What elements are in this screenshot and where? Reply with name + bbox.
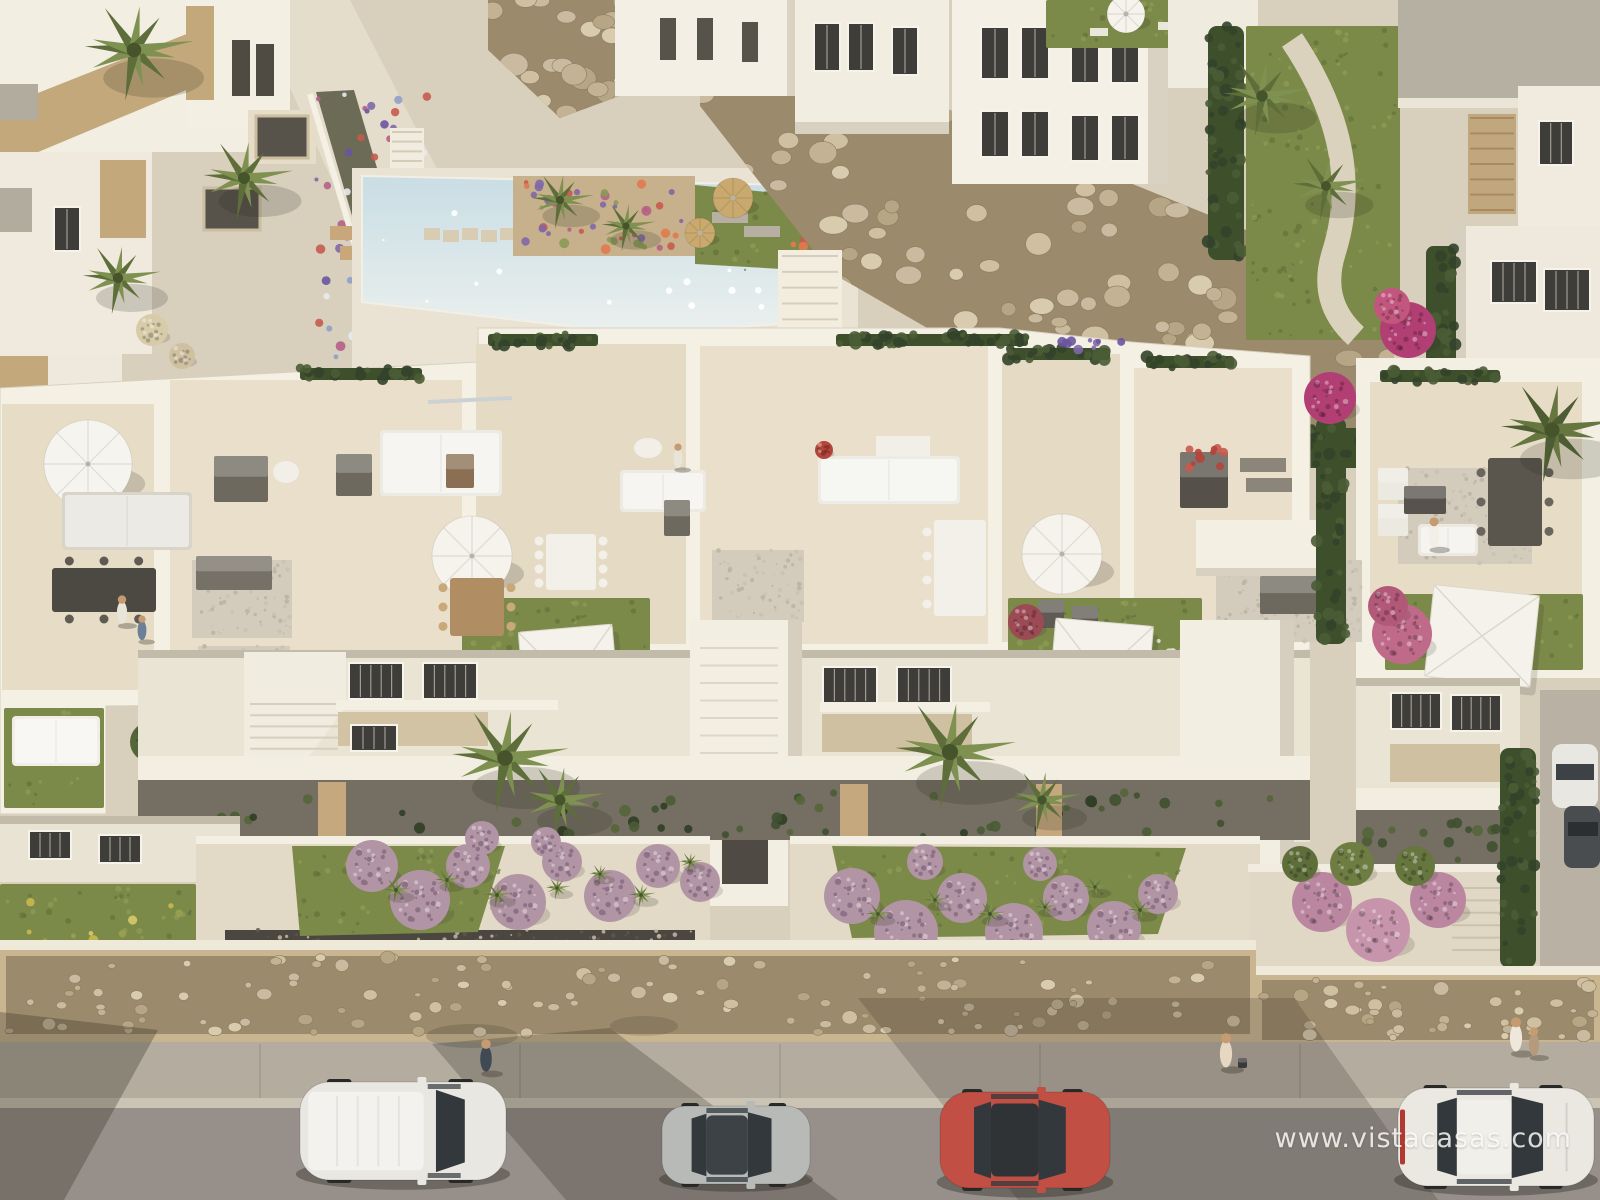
circle-shape: [849, 337, 861, 349]
circle-shape: [1313, 612, 1322, 621]
circle-shape: [1369, 919, 1371, 921]
circle-shape: [1520, 884, 1529, 893]
circle-shape: [960, 829, 968, 837]
circle-shape: [528, 903, 533, 908]
circle-shape: [1165, 31, 1168, 34]
circle-shape: [906, 917, 910, 921]
circle-shape: [1525, 783, 1530, 788]
circle-shape: [364, 857, 366, 859]
car-glass: [1568, 822, 1598, 836]
circle-shape: [371, 853, 375, 857]
circle-shape: [550, 835, 554, 839]
rect-shape: [417, 1077, 426, 1083]
circle-shape: [114, 896, 118, 900]
rect-shape: [1238, 1058, 1247, 1063]
circle-shape: [689, 884, 692, 887]
circle-shape: [1452, 818, 1462, 828]
circle-shape: [343, 188, 350, 195]
ellipse-shape: [674, 448, 683, 468]
circle-shape: [1492, 552, 1496, 556]
circle-shape: [1160, 898, 1165, 903]
circle-shape: [480, 832, 484, 836]
circle-shape: [747, 596, 751, 600]
polygon-shape: [692, 1114, 707, 1176]
rect-shape: [481, 230, 497, 242]
circle-shape: [545, 607, 551, 613]
rect-shape: [790, 836, 1260, 844]
circle-shape: [283, 605, 287, 609]
ellipse-shape: [683, 864, 705, 872]
circle-shape: [663, 934, 666, 937]
circle-shape: [972, 882, 976, 886]
circle-shape: [684, 825, 692, 833]
circle-shape: [1563, 599, 1568, 604]
ellipse-shape: [753, 960, 766, 969]
circle-shape: [654, 871, 659, 876]
circle-shape: [1332, 588, 1341, 597]
circle-shape: [1393, 341, 1396, 344]
circle-shape: [26, 898, 34, 906]
rect-shape: [795, 122, 949, 134]
circle-shape: [1008, 922, 1013, 927]
circle-shape: [1043, 905, 1046, 908]
circle-shape: [126, 887, 130, 891]
circle-shape: [515, 612, 518, 615]
ground-recess: [138, 780, 1310, 840]
ellipse-shape: [1104, 286, 1131, 307]
circle-shape: [574, 189, 580, 195]
circle-shape: [1448, 502, 1451, 505]
circle-shape: [1327, 424, 1336, 433]
circle-shape: [1412, 377, 1422, 387]
circle-shape: [972, 887, 974, 889]
circle-shape: [1418, 907, 1422, 911]
circle-shape: [598, 872, 601, 875]
circle-shape: [1396, 624, 1401, 629]
circle-shape: [1090, 7, 1094, 11]
circle-shape: [367, 872, 372, 877]
circle-shape: [974, 899, 979, 904]
circle-shape: [1029, 933, 1034, 938]
circle-shape: [1093, 885, 1096, 888]
rect-shape: [1356, 788, 1520, 810]
circle-shape: [796, 617, 798, 619]
circle-shape: [415, 897, 417, 899]
circle-shape: [625, 934, 627, 936]
win: [1020, 110, 1050, 158]
circle-shape: [1448, 901, 1453, 906]
ellipse-shape: [631, 986, 646, 998]
circle-shape: [560, 855, 564, 859]
circle-shape: [1013, 619, 1017, 623]
ellipse-shape: [951, 957, 959, 963]
circle-shape: [525, 929, 528, 932]
rect-shape: [1510, 1083, 1519, 1089]
circle-shape: [1338, 413, 1341, 416]
rect-shape: [706, 1108, 747, 1113]
circle-shape: [478, 841, 483, 846]
circle-shape: [1502, 941, 1508, 947]
circle-shape: [1453, 892, 1455, 894]
circle-shape: [260, 624, 263, 627]
rect-shape: [1196, 520, 1326, 576]
circle-shape: [1348, 869, 1353, 874]
rect-shape: [1390, 744, 1500, 782]
ellipse-shape: [1201, 960, 1214, 969]
circle-shape: [791, 563, 794, 566]
ellipse-shape: [337, 1008, 345, 1014]
rect-shape: [138, 780, 1310, 840]
ellipse-shape: [1220, 1040, 1232, 1067]
ellipse-shape: [1051, 317, 1067, 327]
circle-shape: [937, 873, 987, 923]
rect-shape: [1037, 1187, 1046, 1193]
tree-shadow: [426, 1024, 518, 1048]
circle-shape: [920, 922, 924, 926]
circle-shape: [1322, 888, 1326, 892]
circle-shape: [1408, 877, 1413, 882]
circle-shape: [586, 335, 592, 341]
circle-shape: [830, 789, 837, 796]
circle-shape: [160, 333, 162, 335]
circle-shape: [1334, 889, 1336, 891]
circle-shape: [622, 222, 629, 229]
circle-shape: [1317, 401, 1320, 404]
ellipse-shape: [1369, 1009, 1379, 1015]
rect: [0, 816, 240, 824]
car-glass: [1556, 764, 1594, 780]
circle-shape: [958, 869, 962, 873]
circle-shape: [174, 360, 177, 363]
circle-shape: [1320, 474, 1325, 479]
circle-shape: [1360, 562, 1362, 564]
ellipse-shape: [593, 876, 615, 884]
rect-shape: [1280, 620, 1294, 886]
circle-shape: [1382, 28, 1387, 33]
circle-shape: [1321, 181, 1331, 191]
property-aerial-render: www.vistacasas.com: [0, 0, 1600, 1200]
circle-shape: [1256, 599, 1258, 601]
ellipse-shape: [861, 1013, 869, 1018]
circle-shape: [1388, 827, 1395, 834]
circle-shape: [841, 860, 845, 864]
sofa: [380, 430, 502, 496]
circle-shape: [1335, 893, 1339, 897]
circle-shape: [1489, 547, 1492, 550]
circle-shape: [1325, 404, 1330, 409]
circle-shape: [1034, 873, 1039, 878]
circle-shape: [1454, 506, 1458, 510]
circle-shape: [791, 604, 795, 608]
coping: [790, 836, 1260, 844]
circle-shape: [835, 879, 841, 885]
ellipse-shape: [1312, 977, 1319, 983]
circle-shape: [366, 910, 370, 914]
circle-shape: [1263, 142, 1267, 146]
circle-shape: [1438, 263, 1447, 272]
circle-shape: [658, 935, 660, 937]
ellipse-shape: [724, 999, 739, 1008]
circle-shape: [523, 903, 527, 907]
circle-shape: [1340, 381, 1344, 385]
circle-shape: [930, 872, 933, 875]
circle-shape: [1174, 355, 1180, 361]
circle-shape: [1327, 909, 1332, 914]
win: [1543, 268, 1591, 312]
circle-shape: [524, 183, 530, 189]
ellipse-shape: [1029, 298, 1054, 314]
circle-shape: [1517, 926, 1526, 935]
circle-shape: [960, 332, 966, 338]
circle-shape: [1462, 473, 1466, 477]
circle-shape: [999, 935, 1002, 938]
circle-shape: [283, 619, 286, 622]
ellipse-shape: [273, 461, 299, 483]
circle-shape: [561, 852, 565, 856]
circle-shape: [799, 242, 809, 252]
circle-shape: [599, 909, 605, 915]
circle-shape: [673, 233, 679, 239]
circle-shape: [977, 826, 985, 834]
circle-shape: [719, 596, 723, 600]
circle-shape: [938, 924, 942, 928]
circle-shape: [1330, 842, 1374, 886]
circle-shape: [19, 912, 25, 918]
circle-shape: [609, 883, 613, 887]
circle-shape: [949, 900, 952, 903]
rect-shape: [100, 160, 146, 238]
ellipse-shape: [1393, 1025, 1404, 1034]
ellipse-shape: [429, 1002, 442, 1013]
circle-shape: [592, 936, 596, 940]
circle-shape: [1100, 15, 1106, 21]
ellipse-shape: [1001, 303, 1016, 316]
circle-shape: [1497, 861, 1507, 871]
circle-shape: [1498, 804, 1505, 811]
ellipse-shape: [610, 1016, 678, 1036]
circle-shape: [1195, 453, 1205, 463]
circle-shape: [222, 600, 226, 604]
circle-shape: [1501, 827, 1509, 835]
circle-shape: [1031, 614, 1035, 618]
circle-shape: [1464, 477, 1468, 481]
circle-shape: [1452, 490, 1455, 493]
circle-shape: [757, 556, 761, 560]
circle-shape: [1449, 321, 1459, 331]
circle-shape: [657, 824, 665, 832]
circle-shape: [1307, 615, 1310, 618]
circle-shape: [422, 894, 425, 897]
rect-shape: [1510, 1185, 1519, 1191]
circle-shape: [1210, 203, 1220, 213]
circle-shape: [1009, 929, 1011, 931]
circle-shape: [1430, 891, 1432, 893]
ellipse-shape: [219, 185, 302, 217]
ellipse-shape: [1434, 982, 1449, 996]
rect-shape: [336, 454, 372, 473]
stepping-stone: [443, 230, 459, 242]
circle-shape: [1319, 411, 1325, 417]
circle-shape: [1352, 144, 1357, 149]
circle-shape: [1513, 837, 1519, 843]
circle-shape: [1372, 327, 1376, 331]
circle-shape: [491, 645, 496, 650]
circle-shape: [1433, 882, 1437, 886]
circle-shape: [1287, 861, 1291, 865]
circle-shape: [747, 260, 751, 264]
circle-shape: [1472, 825, 1483, 836]
ellipse-shape: [787, 1017, 795, 1024]
ellipse-shape: [633, 897, 658, 907]
circle-shape: [1372, 938, 1376, 942]
win: [1490, 260, 1538, 304]
circle-shape: [967, 909, 971, 913]
circle-shape: [887, 343, 892, 348]
circle-shape: [1433, 897, 1435, 899]
circle-shape: [1267, 209, 1272, 214]
circle-shape: [368, 863, 370, 865]
circle-shape: [696, 886, 701, 891]
circle-shape: [1070, 899, 1074, 903]
circle-shape: [1317, 909, 1322, 914]
circle-shape: [30, 909, 35, 914]
circle-shape: [1154, 880, 1158, 884]
circle-shape: [1256, 278, 1259, 281]
circle-shape: [1388, 949, 1391, 952]
circle-shape: [1208, 67, 1216, 75]
ellipse-shape: [1193, 323, 1212, 340]
circle-shape: [1295, 242, 1300, 247]
rect-shape: [840, 784, 868, 840]
circle-shape: [1500, 912, 1505, 917]
circle-shape: [423, 92, 431, 100]
circle-shape: [1378, 838, 1387, 847]
ellipse-shape: [583, 973, 597, 985]
circle-shape: [510, 934, 512, 936]
circle-shape: [1477, 561, 1482, 566]
circle-shape: [1464, 495, 1466, 497]
circle-shape: [188, 358, 190, 360]
circle-shape: [556, 855, 558, 857]
circle-shape: [945, 895, 949, 899]
circle-shape: [1209, 112, 1215, 118]
circle-shape: [1299, 260, 1303, 264]
circle-shape: [119, 930, 127, 938]
circle-shape: [755, 249, 759, 253]
circle-shape: [912, 934, 916, 938]
rect-shape: [697, 18, 713, 60]
circle-shape: [536, 609, 540, 613]
circle-shape: [1385, 315, 1390, 320]
circle-shape: [1336, 616, 1345, 625]
circle-shape: [1045, 873, 1048, 876]
ellipse-shape: [1381, 985, 1387, 989]
ellipse-shape: [415, 993, 421, 997]
circle-shape: [536, 340, 547, 351]
circle-shape: [230, 610, 234, 614]
rect-shape: [664, 500, 690, 516]
ellipse-shape: [770, 180, 787, 191]
circle-shape: [1251, 72, 1255, 76]
circle-shape: [517, 932, 521, 936]
circle-shape: [1474, 480, 1477, 483]
circle-shape: [1232, 169, 1241, 178]
circle-shape: [1152, 887, 1154, 889]
circle-shape: [1120, 788, 1128, 796]
circle-shape: [1038, 645, 1043, 650]
circle-shape: [688, 860, 691, 863]
circle-shape: [623, 897, 628, 902]
circle-shape: [1025, 914, 1029, 918]
circle-shape: [89, 931, 94, 936]
circle-shape: [919, 912, 923, 916]
circle-shape: [915, 869, 918, 872]
circle-shape: [1145, 881, 1151, 887]
circle-shape: [597, 899, 600, 902]
circle-shape: [316, 97, 321, 102]
circle-shape: [1296, 616, 1298, 618]
circle-shape: [1289, 851, 1293, 855]
circle-shape: [537, 831, 541, 835]
circle-shape: [1306, 852, 1310, 856]
circle-shape: [278, 619, 282, 623]
circle-shape: [555, 873, 560, 878]
hedge: [1202, 21, 1249, 261]
circle-shape: [665, 879, 668, 882]
circle-shape: [1512, 548, 1515, 551]
circle-shape: [1302, 639, 1307, 644]
circle-shape: [471, 871, 476, 876]
ellipse-shape: [481, 1071, 503, 1078]
circle-shape: [540, 849, 545, 854]
circle-shape: [1294, 228, 1300, 234]
circle-shape: [1505, 756, 1513, 764]
circle-shape: [957, 881, 961, 885]
circle-shape: [1022, 625, 1027, 630]
circle-shape: [1081, 36, 1086, 41]
rect-shape: [1090, 28, 1108, 36]
circle-shape: [1337, 903, 1342, 908]
circle-shape: [1367, 937, 1371, 941]
circle-shape: [70, 781, 73, 784]
ellipse-shape: [1365, 991, 1372, 996]
ellipse-shape: [1028, 314, 1043, 323]
circle-shape: [934, 865, 936, 867]
circle-shape: [847, 878, 851, 882]
circle-shape: [1347, 849, 1351, 853]
circle-shape: [840, 911, 846, 917]
circle-shape: [651, 805, 659, 813]
circle-shape: [862, 897, 867, 902]
circle-shape: [513, 884, 517, 888]
circle-shape: [175, 909, 183, 917]
watermark: www.vistacasas.com: [1275, 1123, 1572, 1154]
rect-shape: [0, 84, 38, 120]
circle-shape: [1390, 610, 1395, 615]
circle-shape: [301, 898, 306, 903]
win: [813, 22, 841, 72]
circle-shape: [1008, 604, 1044, 640]
circle-shape: [1097, 911, 1103, 917]
circle-shape: [1290, 278, 1294, 282]
circle-shape: [1468, 492, 1472, 496]
circle-shape: [1412, 337, 1417, 342]
circle-shape: [353, 873, 357, 877]
circle-shape: [1359, 877, 1362, 880]
ellipse-shape: [557, 11, 576, 23]
circle-shape: [1029, 622, 1033, 626]
circle-shape: [711, 886, 713, 888]
